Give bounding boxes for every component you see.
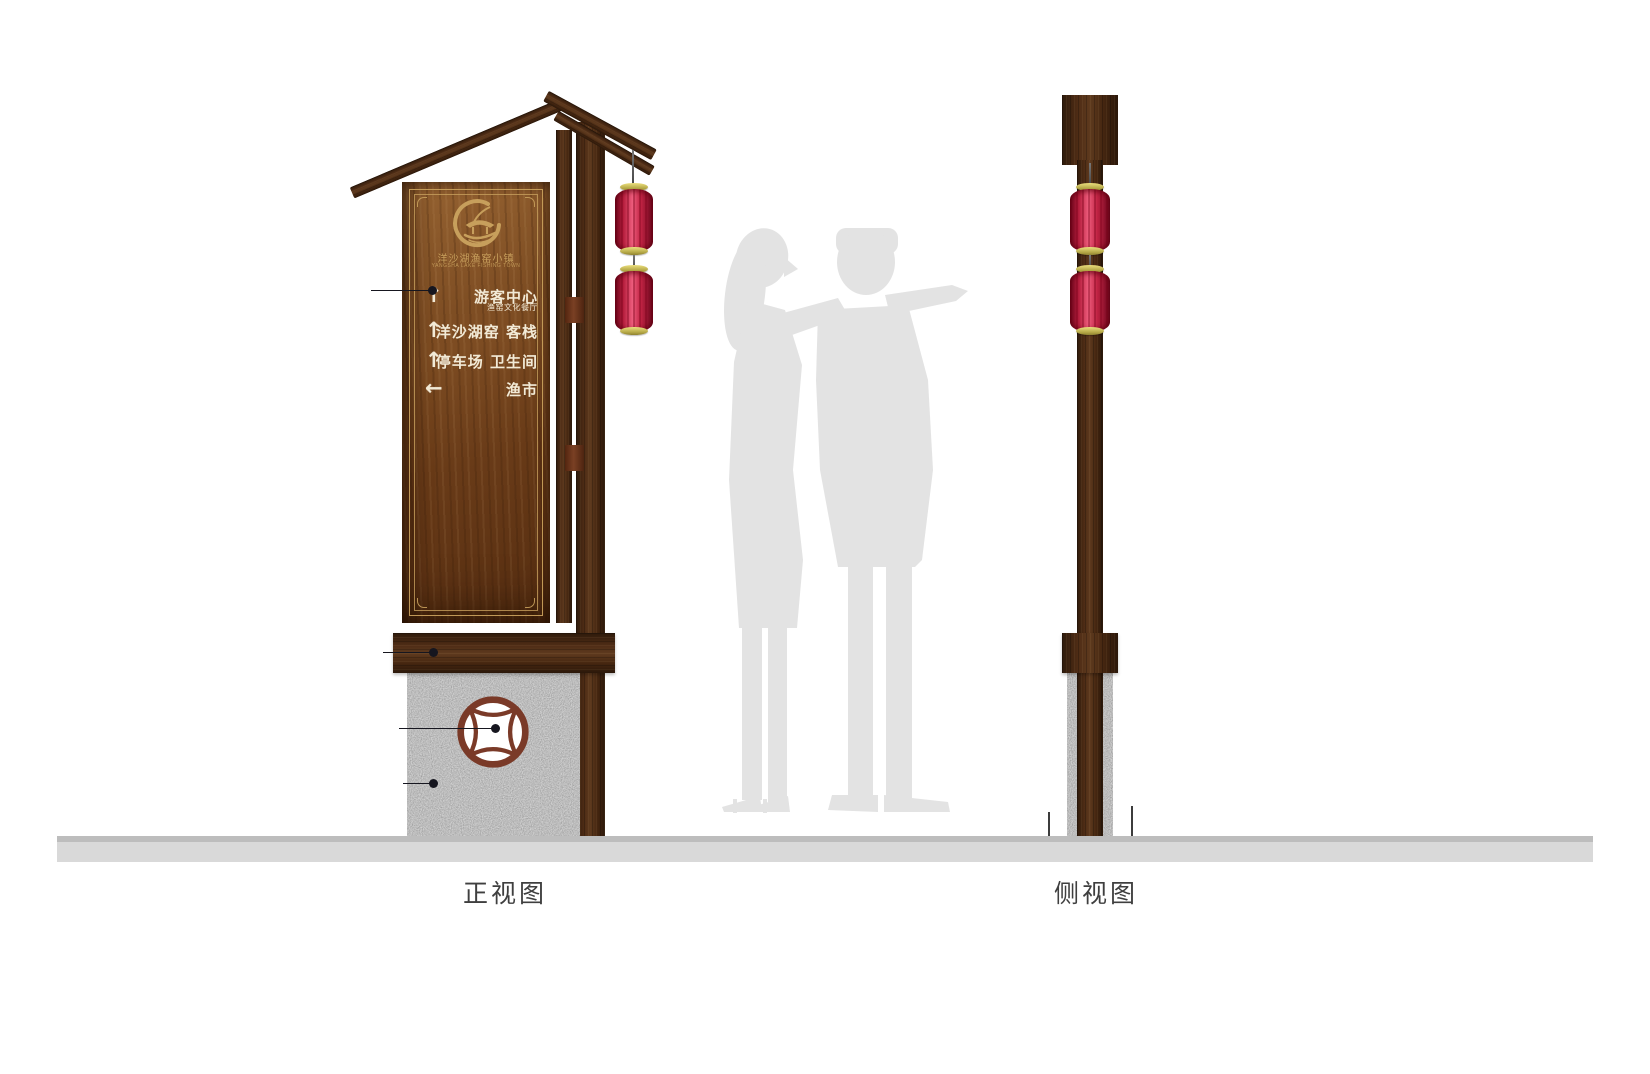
red-lantern [615,265,653,335]
front-base-beam [393,633,615,673]
lantern-body [615,271,653,332]
destination-text: 停车场 卫生间 [436,351,538,372]
lantern-cap [1076,327,1104,335]
leader-line-sign-row [371,290,433,291]
destination-text: 渔市 [506,379,538,400]
leader-dot [428,286,437,295]
side-roof-cap [1062,95,1118,165]
frame-ornament [525,598,535,608]
front-frame-post [556,130,572,623]
front-connector-block-top [565,297,584,323]
frame-ornament [417,598,427,608]
lantern-body [615,189,653,252]
leader-line-coin-emblem [399,728,496,729]
ground-anchor-tick [1131,806,1133,836]
resort-logo-icon [449,198,503,250]
ground-line [57,836,1593,862]
red-lantern [1070,183,1110,255]
front-connector-block-bottom [565,445,584,471]
side-view-label: 侧视图 [1026,874,1166,910]
sign-board: 洋沙湖渔窑小镇 YANGSHA LAKE FISHING TOWN ↑ 游客中心… [402,182,550,623]
lantern-cap [620,327,648,335]
ground-anchor-tick [1048,812,1050,836]
lantern-cap [1076,247,1104,255]
lantern-rod [632,150,634,186]
frame-ornament [525,197,535,207]
red-lantern [1070,265,1110,335]
leader-line-base-beam [383,652,435,653]
frame-ornament [417,197,427,207]
side-base-beam [1062,633,1118,673]
resort-name-en: YANGSHA LAKE FISHING TOWN [402,263,550,269]
leader-dot [429,779,438,788]
front-right-pole [576,122,605,836]
front-view-label: 正视图 [435,874,575,910]
lantern-body [1070,271,1110,332]
human-scale-silhouette [700,215,980,815]
arrow-left-icon: ← [425,376,443,400]
lantern-cap [620,247,648,255]
destination-subtext: 渔窑文化餐厅 [487,302,538,313]
lantern-body [1070,189,1110,252]
leader-dot [491,724,500,733]
leader-dot [429,648,438,657]
destination-text: 洋沙湖窑 客栈 [436,321,538,342]
design-drawing-canvas: 洋沙湖渔窑小镇 YANGSHA LAKE FISHING TOWN ↑ 游客中心… [0,0,1650,1074]
red-lantern [615,183,653,255]
